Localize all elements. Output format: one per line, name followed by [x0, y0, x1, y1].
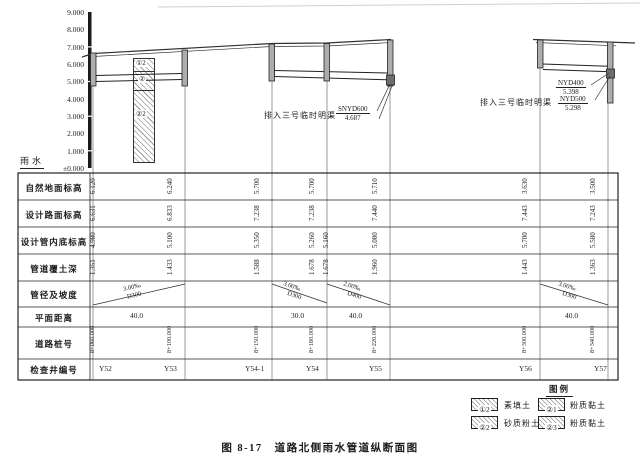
- value-cover: 1.443: [521, 259, 529, 275]
- manhole-id: Y54-1: [245, 364, 264, 373]
- road-line-right: [533, 40, 635, 46]
- row-label-cover: 管道覆土深: [18, 263, 90, 275]
- axis-tick: 2.000: [46, 129, 84, 138]
- manhole-id: Y55: [369, 364, 382, 373]
- drawing-page: 9.000 8.000 7.000 6.000 5.000 4.000 3.00…: [0, 0, 640, 470]
- axis-tick: 9.000: [46, 8, 84, 17]
- outfall-right-pipe1-label: NYD400 5.398: [556, 79, 586, 96]
- outfall-right-pipe2-name: NYD500: [558, 95, 588, 104]
- legend-symbol-box: ②1: [538, 398, 565, 411]
- value-stake: 8+180.000: [308, 326, 316, 353]
- legend-title: 图例: [546, 383, 573, 397]
- segment-distance: 40.0: [349, 311, 362, 320]
- value-road: 7.443: [521, 205, 529, 221]
- legend-symbol-box: ②2: [471, 416, 498, 429]
- soil-layer-label: ②2: [135, 110, 147, 118]
- outfall-left-channel-label: 排入三号临时明渠: [264, 110, 336, 121]
- value-road: 7.238: [253, 205, 261, 221]
- row-label-stake: 道路桩号: [18, 338, 90, 350]
- legend-label: 砂质粉土: [504, 418, 540, 429]
- outfall-left-pipe-name: SNYD600: [336, 105, 370, 114]
- axis-tick: 7.000: [46, 43, 84, 52]
- value-invert: 5.700: [521, 232, 529, 248]
- legend-label: 粉质黏土: [570, 418, 606, 429]
- row-label-invert: 设计管内底标高: [18, 236, 90, 248]
- outfall-right-pipe1-name: NYD400: [556, 79, 586, 88]
- figure-caption: 图 8-17 道路北侧雨水管道纵断面图: [0, 440, 640, 455]
- value-cover: 1.363: [589, 259, 597, 275]
- axis-unit-label: 雨水: [20, 154, 44, 169]
- axis-tick: 4.000: [46, 95, 84, 104]
- outfall-right-pipe2-invert: 5.298: [565, 104, 581, 112]
- soil-layer-label: ①2: [135, 59, 147, 67]
- value-invert: 5.260: [308, 232, 316, 248]
- axis-tick: 1.000: [46, 147, 84, 156]
- value-stake: 8+100.000: [166, 326, 174, 353]
- value-cover: 1.678: [308, 259, 316, 275]
- value-road: 6.833: [166, 205, 174, 221]
- value-invert: 5.580: [589, 232, 597, 248]
- value-invert: 5.080: [371, 232, 379, 248]
- row-label-ground: 自然地面标高: [18, 182, 90, 194]
- value-road: 7.440: [371, 205, 379, 221]
- axis-tick: 8.000: [46, 25, 84, 34]
- legend-symbol: ②1: [545, 405, 557, 414]
- value-stake: 8+150.000: [253, 326, 261, 353]
- manhole-id: Y53: [164, 364, 177, 373]
- legend-symbol: ②3: [545, 423, 557, 432]
- legend-symbol: ①2: [478, 405, 490, 414]
- road-line-left: [82, 40, 391, 58]
- value-cover: 1.433: [166, 259, 174, 275]
- value-stake: 8+220.000: [371, 326, 379, 353]
- manhole-id: Y52: [99, 364, 112, 373]
- axis-tick: 3.000: [46, 112, 84, 121]
- segment-distance: 30.0: [291, 311, 304, 320]
- outfall-right-pipe2-label: NYD500 5.298: [558, 95, 588, 112]
- value-ground: 3.630: [521, 178, 529, 194]
- soil-layer-label: ②: [138, 75, 146, 83]
- outfall-left-pipe-label: SNYD600 4.687: [336, 105, 370, 122]
- pipe-segment-2: [275, 71, 389, 80]
- value-ground: 5.700: [253, 178, 261, 194]
- segment-distance: 40.0: [565, 311, 578, 320]
- value-invert: 5.350: [253, 232, 261, 248]
- value-ground: 5.700: [308, 178, 316, 194]
- pipe-segment-3: [543, 64, 608, 72]
- outfall-box-left: [387, 75, 395, 85]
- legend-label: 素填土: [504, 400, 531, 411]
- value-cover: 1.351: [89, 259, 97, 275]
- legend-symbol: ②2: [478, 423, 490, 432]
- value-stake: 8+300.000: [521, 326, 529, 353]
- row-label-distance: 平面距离: [18, 312, 90, 324]
- value-invert: 4.980: [89, 232, 97, 248]
- axis-tick: ±0.000: [46, 164, 84, 173]
- segment-distance: 40.0: [130, 311, 143, 320]
- axis-tick: 5.000: [46, 77, 84, 86]
- value-ground: 6.240: [166, 178, 174, 194]
- figure-top-edge: [158, 3, 640, 7]
- value-road: 7.243: [589, 205, 597, 221]
- value-stake: 8+340.000: [589, 326, 597, 353]
- row-label-road: 设计路面标高: [18, 209, 90, 221]
- outfall-left-invert: 4.687: [345, 114, 361, 122]
- value-stake: 8+060.000: [89, 326, 97, 353]
- manhole-id: Y54: [306, 364, 319, 373]
- value-road: 6.631: [89, 205, 97, 221]
- elevation-scale-bar: [88, 12, 92, 168]
- value-ground: 5.710: [371, 178, 379, 194]
- value-cover: 1.960: [371, 259, 379, 275]
- legend-symbol-box: ①2: [471, 398, 498, 411]
- row-label-slope: 管径及坡度: [18, 289, 90, 301]
- legend-symbol-box: ②3: [538, 416, 565, 429]
- value-road: 7.238: [308, 205, 316, 221]
- manhole-id: Y56: [519, 364, 532, 373]
- value-ground: 3.500: [589, 178, 597, 194]
- legend-label: 粉质黏土: [570, 400, 606, 411]
- row-label-manhole: 检查井编号: [18, 364, 90, 376]
- outfall-right-channel-label: 排入三号临时明渠: [480, 97, 552, 108]
- value-cover: 1.588: [253, 259, 261, 275]
- value-invert-right: 5.160: [322, 232, 330, 248]
- manhole-id: Y57: [594, 364, 607, 373]
- value-invert: 5.100: [166, 232, 174, 248]
- value-cover-right: 1.678: [322, 259, 330, 275]
- value-ground: 6.120: [89, 178, 97, 194]
- axis-tick: 6.000: [46, 60, 84, 69]
